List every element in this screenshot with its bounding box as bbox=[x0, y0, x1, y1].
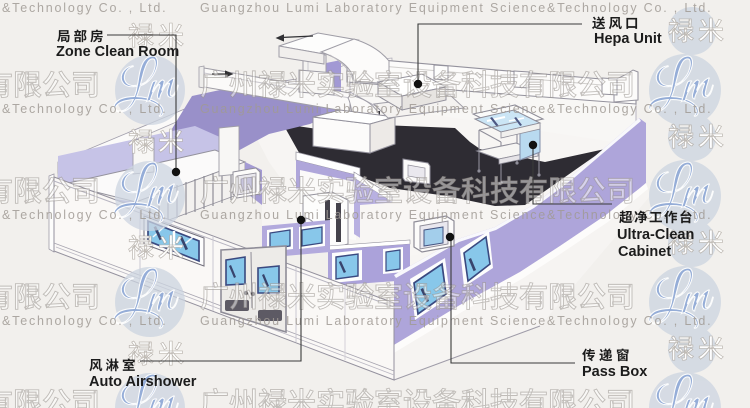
svg-text:Zone Clean Room: Zone Clean Room bbox=[56, 44, 179, 60]
svg-text:Hepa Unit: Hepa Unit bbox=[594, 31, 662, 47]
svg-text:Auto Airshower: Auto Airshower bbox=[89, 374, 197, 390]
svg-text:Guangzhou Lumi Laboratory Equi: Guangzhou Lumi Laboratory Equipment Scie… bbox=[0, 208, 167, 222]
svg-text:Guangzhou Lumi Laboratory Equi: Guangzhou Lumi Laboratory Equipment Scie… bbox=[0, 102, 167, 116]
svg-text:Guangzhou Lumi Laboratory Equi: Guangzhou Lumi Laboratory Equipment Scie… bbox=[0, 314, 167, 328]
svg-text:Guangzhou Lumi Laboratory Equi: Guangzhou Lumi Laboratory Equipment Scie… bbox=[200, 314, 712, 328]
svg-text:Guangzhou Lumi Laboratory Equi: Guangzhou Lumi Laboratory Equipment Scie… bbox=[200, 102, 712, 116]
svg-text:Guangzhou Lumi Laboratory Equi: Guangzhou Lumi Laboratory Equipment Scie… bbox=[0, 1, 167, 15]
svg-text:Pass Box: Pass Box bbox=[582, 364, 647, 380]
svg-text:Cabinet: Cabinet bbox=[618, 244, 671, 260]
svg-text:Ultra-Clean: Ultra-Clean bbox=[617, 227, 694, 243]
svg-text:Guangzhou Lumi Laboratory Equi: Guangzhou Lumi Laboratory Equipment Scie… bbox=[200, 1, 712, 15]
